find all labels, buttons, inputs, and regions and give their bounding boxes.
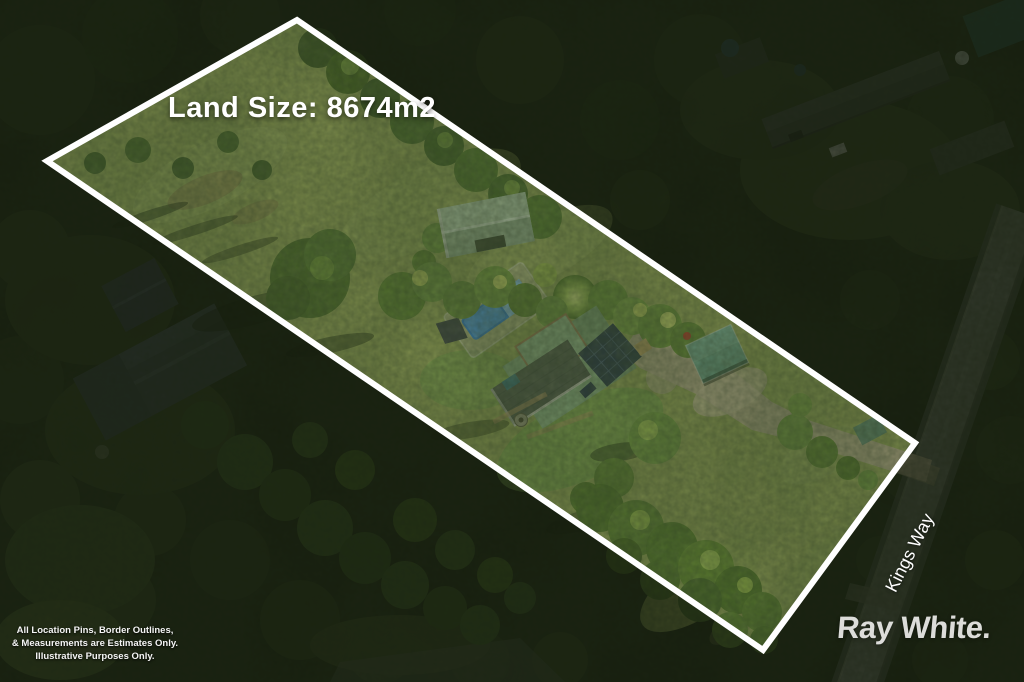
disclaimer-text: All Location Pins, Border Outlines, & Me… <box>10 624 180 663</box>
land-size-label: Land Size: 8674m2 <box>168 92 436 125</box>
aerial-property-photo: Land Size: 8674m2 Kings Way Ray White. A… <box>0 0 1024 682</box>
disclaimer-line-1: All Location Pins, Border Outlines, <box>10 624 180 637</box>
disclaimer-line-2: & Measurements are Estimates Only. <box>10 637 180 650</box>
disclaimer-line-3: Illustrative Purposes Only. <box>10 650 180 663</box>
ray-white-logo: Ray White. <box>836 610 993 646</box>
aerial-scene <box>0 0 1024 682</box>
